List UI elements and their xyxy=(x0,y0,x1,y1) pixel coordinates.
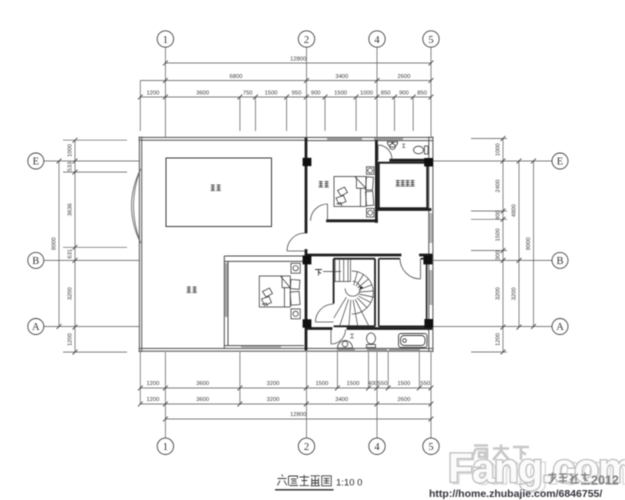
svg-text:2400: 2400 xyxy=(496,180,502,193)
svg-text:3600: 3600 xyxy=(196,91,209,97)
svg-text:B: B xyxy=(32,256,39,267)
svg-text:8000: 8000 xyxy=(526,237,532,250)
svg-text:850: 850 xyxy=(381,91,391,97)
svg-text:1500: 1500 xyxy=(496,228,502,241)
svg-text:1200: 1200 xyxy=(146,397,159,403)
svg-text:1500: 1500 xyxy=(347,381,360,387)
svg-text:1200: 1200 xyxy=(146,91,159,97)
svg-text:1500: 1500 xyxy=(315,381,328,387)
svg-text:2600: 2600 xyxy=(398,397,411,403)
svg-text:1500: 1500 xyxy=(334,91,347,97)
svg-text:850: 850 xyxy=(417,91,427,97)
svg-text:1000: 1000 xyxy=(68,144,74,157)
svg-text:B: B xyxy=(556,256,563,267)
svg-text:2: 2 xyxy=(304,442,309,453)
svg-text:3200: 3200 xyxy=(267,397,280,403)
svg-text:4: 4 xyxy=(374,442,380,453)
svg-text:300: 300 xyxy=(496,251,502,261)
svg-text:1200: 1200 xyxy=(146,381,159,387)
svg-text:2600: 2600 xyxy=(398,74,411,80)
svg-text:3200: 3200 xyxy=(496,287,502,300)
svg-text:900: 900 xyxy=(311,91,321,97)
svg-text:1000: 1000 xyxy=(496,143,502,156)
svg-text:1:10 0: 1:10 0 xyxy=(336,478,362,489)
svg-text:3200: 3200 xyxy=(68,287,74,300)
svg-text:1: 1 xyxy=(163,442,168,453)
svg-text:3636: 3636 xyxy=(68,203,74,216)
svg-text:631: 631 xyxy=(68,249,74,259)
svg-text:3600: 3600 xyxy=(196,397,209,403)
svg-text:3200: 3200 xyxy=(512,287,518,300)
svg-text:2: 2 xyxy=(304,35,309,46)
svg-text:5: 5 xyxy=(428,35,433,46)
svg-text:12800: 12800 xyxy=(290,412,306,418)
svg-text:E: E xyxy=(33,157,39,168)
svg-text:1200: 1200 xyxy=(496,333,502,346)
svg-text:1200: 1200 xyxy=(68,333,74,346)
svg-text:3400: 3400 xyxy=(335,397,348,403)
svg-text:6800: 6800 xyxy=(230,74,243,80)
svg-text:1500: 1500 xyxy=(265,91,278,97)
svg-text:4800: 4800 xyxy=(512,204,518,217)
svg-text:http://home.zhubajie.com/68467: http://home.zhubajie.com/6846755/ xyxy=(429,488,602,500)
svg-text:A: A xyxy=(32,322,40,333)
svg-text:400: 400 xyxy=(368,381,378,387)
svg-text:8000: 8000 xyxy=(52,237,58,250)
svg-text:900: 900 xyxy=(399,91,409,97)
svg-text:5: 5 xyxy=(428,442,433,453)
svg-text:12800: 12800 xyxy=(290,57,306,63)
svg-text:A: A xyxy=(556,322,564,333)
svg-text:550: 550 xyxy=(378,381,388,387)
svg-text:3400: 3400 xyxy=(335,74,348,80)
svg-text:550: 550 xyxy=(420,381,430,387)
svg-text:3600: 3600 xyxy=(196,381,209,387)
svg-text:1000: 1000 xyxy=(360,91,373,97)
svg-text:2012: 2012 xyxy=(591,474,619,488)
svg-text:533: 533 xyxy=(68,162,74,172)
svg-text:1: 1 xyxy=(163,35,168,46)
svg-text:1500: 1500 xyxy=(397,381,410,387)
svg-text:950: 950 xyxy=(292,91,302,97)
svg-text:400: 400 xyxy=(496,210,502,220)
svg-text:E: E xyxy=(557,157,563,168)
svg-text:750: 750 xyxy=(243,91,253,97)
svg-text:3200: 3200 xyxy=(267,381,280,387)
svg-text:4: 4 xyxy=(374,35,380,46)
